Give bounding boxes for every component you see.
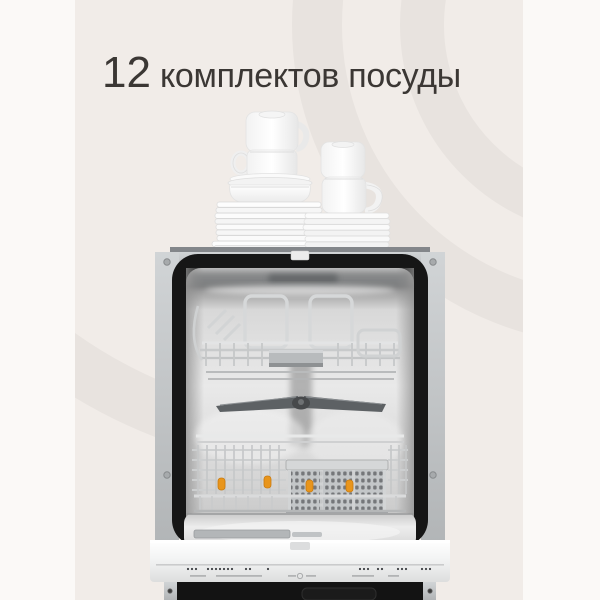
swirl-arc (422, 0, 523, 215)
product-card: 12 комплектов посуды (0, 0, 600, 600)
dish-stack-right (303, 142, 390, 248)
headline-text: комплектов посуды (160, 57, 461, 96)
headline: 12 комплектов посуды (102, 48, 461, 98)
upper-rack-handle (269, 350, 323, 367)
headline-number: 12 (102, 48, 151, 98)
door-catch (291, 251, 309, 260)
dishwasher-illustration (150, 246, 450, 600)
cutlery-basket (286, 460, 388, 514)
dishes-illustration (200, 108, 400, 250)
plinth (164, 582, 436, 600)
door (150, 540, 450, 582)
